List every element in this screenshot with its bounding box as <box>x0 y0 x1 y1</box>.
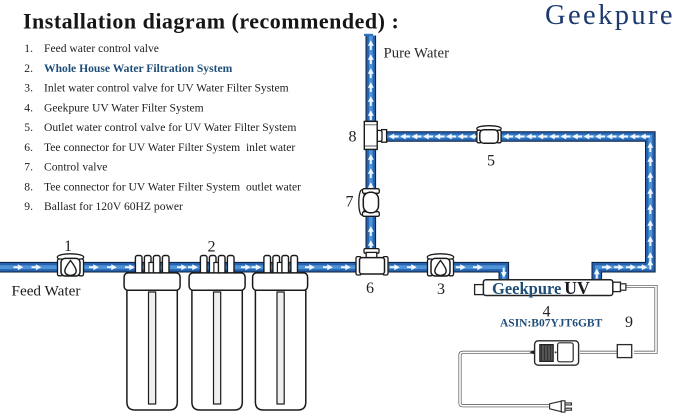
svg-text:8.: 8. <box>24 180 33 193</box>
svg-text:3: 3 <box>437 281 445 298</box>
svg-text:Tee connector for UV Water Fil: Tee connector for UV Water Filter System… <box>44 180 301 193</box>
svg-text:Feed Water: Feed Water <box>12 282 81 299</box>
svg-text:Installation diagram (recommen: Installation diagram (recommended) : <box>23 9 399 34</box>
svg-text:8: 8 <box>349 129 357 146</box>
svg-text:Feed water control valve: Feed water control valve <box>44 42 159 55</box>
svg-text:2: 2 <box>208 239 216 256</box>
svg-text:Pure Water: Pure Water <box>384 46 450 62</box>
svg-text:Tee connector for UV Water Fil: Tee connector for UV Water Filter System… <box>44 141 295 154</box>
svg-text:9: 9 <box>625 314 633 331</box>
svg-text:4.: 4. <box>24 101 33 114</box>
svg-text:7: 7 <box>346 194 354 211</box>
svg-text:Geekpure UV: Geekpure UV <box>492 278 590 298</box>
svg-text:Whole House Water Filtration S: Whole House Water Filtration System <box>44 62 233 75</box>
svg-text:6.: 6. <box>24 141 33 154</box>
svg-text:2.: 2. <box>24 62 33 75</box>
svg-text:ASIN:B07YJT6GBT: ASIN:B07YJT6GBT <box>500 318 603 330</box>
svg-text:Geekpure UV Water Filter Syste: Geekpure UV Water Filter System <box>44 101 204 114</box>
svg-text:9.: 9. <box>24 200 33 213</box>
svg-text:3.: 3. <box>24 82 33 95</box>
svg-text:1: 1 <box>64 238 72 255</box>
svg-text:Geekpure: Geekpure <box>545 0 675 31</box>
svg-text:6: 6 <box>366 280 374 297</box>
svg-text:5.: 5. <box>24 121 33 134</box>
svg-text:Ballast for 120V 60HZ power: Ballast for 120V 60HZ power <box>44 200 183 213</box>
svg-text:7.: 7. <box>24 161 33 174</box>
svg-text:Inlet water control valve for: Inlet water control valve for UV Water F… <box>44 82 289 95</box>
svg-text:Control valve: Control valve <box>44 161 107 174</box>
svg-text:1.: 1. <box>24 42 33 55</box>
svg-text:Outlet water control valve for: Outlet water control valve for UV Water … <box>44 121 296 134</box>
svg-text:5: 5 <box>487 153 495 170</box>
